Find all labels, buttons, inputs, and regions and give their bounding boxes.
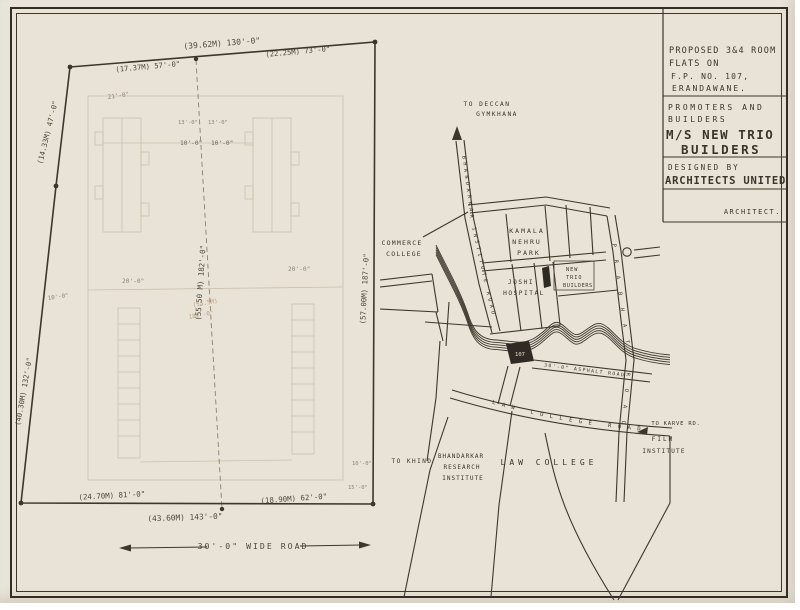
site-marker-icon: [542, 266, 551, 288]
kamala-park-line1: KAMALA: [509, 227, 544, 235]
to-khind-label: TO KHIND: [392, 458, 433, 465]
bhandarkar-road-east-edge: [464, 140, 500, 331]
north-arrow-icon: [452, 126, 462, 140]
plot-access-street-west: [498, 366, 508, 404]
dim-top-left: (17.37M) 57'-0": [115, 59, 180, 74]
project-title-line2: FLATS ON: [669, 59, 720, 69]
wedge-west-line: [404, 417, 448, 597]
project-title-line1: PROPOSED 3&4 ROOM: [669, 46, 776, 56]
builder-name-line1: M/S NEW TRIO: [666, 127, 774, 142]
middle-cross-street-east2: [634, 255, 660, 258]
bhandarkar-institute-line3: INSTITUTE: [442, 475, 484, 482]
builder-name-line2: BUILDERS: [681, 142, 761, 157]
block-street-1: [566, 205, 570, 258]
wedge-east-line: [491, 411, 512, 597]
left-street-2: [380, 309, 438, 312]
commerce-college-line1: COMMERCE: [382, 239, 423, 247]
joshi-hospital-line2: HOSPITAL: [503, 290, 545, 297]
pencil-building-layout: [88, 96, 343, 480]
dim-15a: 15'-0": [348, 485, 368, 491]
location-map: 107 TO DECCAN GYMKHANA BHANDARKAR INSTIT…: [380, 101, 701, 600]
block-street-2: [590, 207, 593, 255]
park-street-east: [545, 206, 550, 261]
park-street-west: [506, 214, 511, 262]
khind-road-upper: [436, 341, 440, 398]
khind-road-lower: [427, 398, 436, 461]
bhandarkar-institute-line1: BHANDARKAR: [438, 453, 484, 460]
wide-road-label: 30'-0" WIDE ROAD: [198, 541, 309, 551]
right-horizontal-street: [558, 290, 618, 296]
dim-10a: 10'-0": [180, 140, 202, 147]
junction-street-horizontal: [425, 322, 492, 327]
dim-right-vertical: (57.00M) 187'-0": [358, 253, 371, 325]
upper-cross-street-south: [470, 205, 607, 216]
dim-20a: 20'-0": [288, 266, 310, 273]
bhandarkar-road-label: BHANDARKAR INSTITUTE ROAD: [460, 155, 496, 318]
dim-left-upper: (14.33M) 47'-0": [35, 100, 59, 165]
new-trio-line1: NEW: [566, 267, 578, 273]
middle-cross-street-east1: [634, 247, 660, 250]
commerce-street-north: [380, 274, 432, 280]
promoters-line1: PROMOTERS AND: [668, 103, 764, 112]
pencil-centre-note: (55.5M) 182'-0": [188, 298, 218, 321]
boundary-dimensions: (39.62M) 130'-0" (17.37M) 57'-0" (22.25M…: [13, 36, 371, 523]
title-block: PROPOSED 3&4 ROOM FLATS ON F.P. NO. 107,…: [663, 9, 786, 222]
bhandarkar-institute-line2: RESEARCH: [444, 464, 481, 471]
upper-cross-street-north: [468, 197, 610, 208]
hospital-street-west: [512, 264, 521, 331]
diagonal-street: [423, 212, 468, 237]
new-trio-line2: TRIO: [566, 275, 583, 281]
road-arrow-right-icon: [359, 542, 371, 549]
designed-by-label: DESIGNED BY: [668, 163, 740, 172]
dim-10c: 10'-0": [47, 293, 69, 302]
project-title-line3: F.P. NO. 107,: [671, 72, 749, 81]
to-karve-label: TO KARVE RD.: [651, 421, 700, 427]
dim-20b: 20'-0": [122, 278, 144, 285]
dim-bottom-left: (24.70M) 81'-0": [78, 489, 145, 501]
dim-centre-vertical: (55.50 M) 182'-0": [193, 245, 207, 321]
kamala-park-line3: PARK: [517, 249, 541, 257]
project-title-line4: ERANDAWANE.: [672, 84, 747, 93]
map-labels: TO DECCAN GYMKHANA BHANDARKAR INSTITUTE …: [382, 101, 701, 482]
dim-13b: 13'-0": [208, 120, 228, 126]
law-college-label: LAW COLLEGE: [501, 458, 598, 467]
road-arrow-left-icon: [119, 545, 131, 552]
wide-road-dimension: 30'-0" WIDE ROAD: [119, 541, 371, 552]
dim-10d: 10'-0": [352, 461, 372, 467]
promoters-line2: BUILDERS: [668, 115, 727, 124]
kamala-park-line2: NEHRU: [512, 238, 542, 246]
dim-21: 21'-0": [107, 91, 129, 101]
drawing-svg: PROPOSED 3&4 ROOM FLATS ON F.P. NO. 107,…: [0, 0, 800, 610]
film-institute-line2: INSTITUTE: [642, 448, 685, 455]
film-institute-line1: FILM: [652, 436, 674, 443]
dim-top-total: (39.62M) 130'-0": [183, 36, 261, 51]
architect-signature-label: ARCHITECT.: [724, 208, 781, 216]
designer-name: ARCHITECTS UNITED: [665, 175, 786, 187]
plot-access-street-east: [510, 367, 520, 406]
junction-circle-landmark: [623, 248, 631, 256]
junction-connector: [436, 312, 443, 341]
law-college-ground-east-line: [618, 503, 670, 600]
dim-13a: 13'-0": [178, 120, 198, 126]
new-trio-line3: BUILDERS: [563, 283, 593, 289]
law-college-road-north-edge: [452, 390, 672, 428]
bhandarkar-road-label-text: BHANDARKAR INSTITUTE ROAD: [460, 155, 496, 318]
dim-top-right: (22.25M) 73'-0": [265, 44, 330, 59]
site-plan: (39.62M) 130'-0" (17.37M) 57'-0" (22.25M…: [13, 36, 377, 552]
commerce-college-line2: COLLEGE: [386, 250, 422, 258]
plot-107-marker: 107: [506, 341, 534, 364]
dim-10b: 10'-0": [211, 140, 233, 147]
to-deccan-line1: TO DECCAN: [463, 101, 510, 108]
plot-107-number: 107: [515, 352, 525, 358]
dim-bottom-total: (43.60M) 143'-0": [147, 512, 222, 524]
scanned-drawing-sheet: PROPOSED 3&4 ROOM FLATS ON F.P. NO. 107,…: [0, 0, 800, 610]
joshi-hospital-line1: JOSHI: [508, 279, 534, 286]
to-deccan-line2: GYMKHANA: [476, 111, 518, 118]
left-connector-street: [432, 274, 438, 312]
commerce-street-south: [380, 281, 432, 287]
